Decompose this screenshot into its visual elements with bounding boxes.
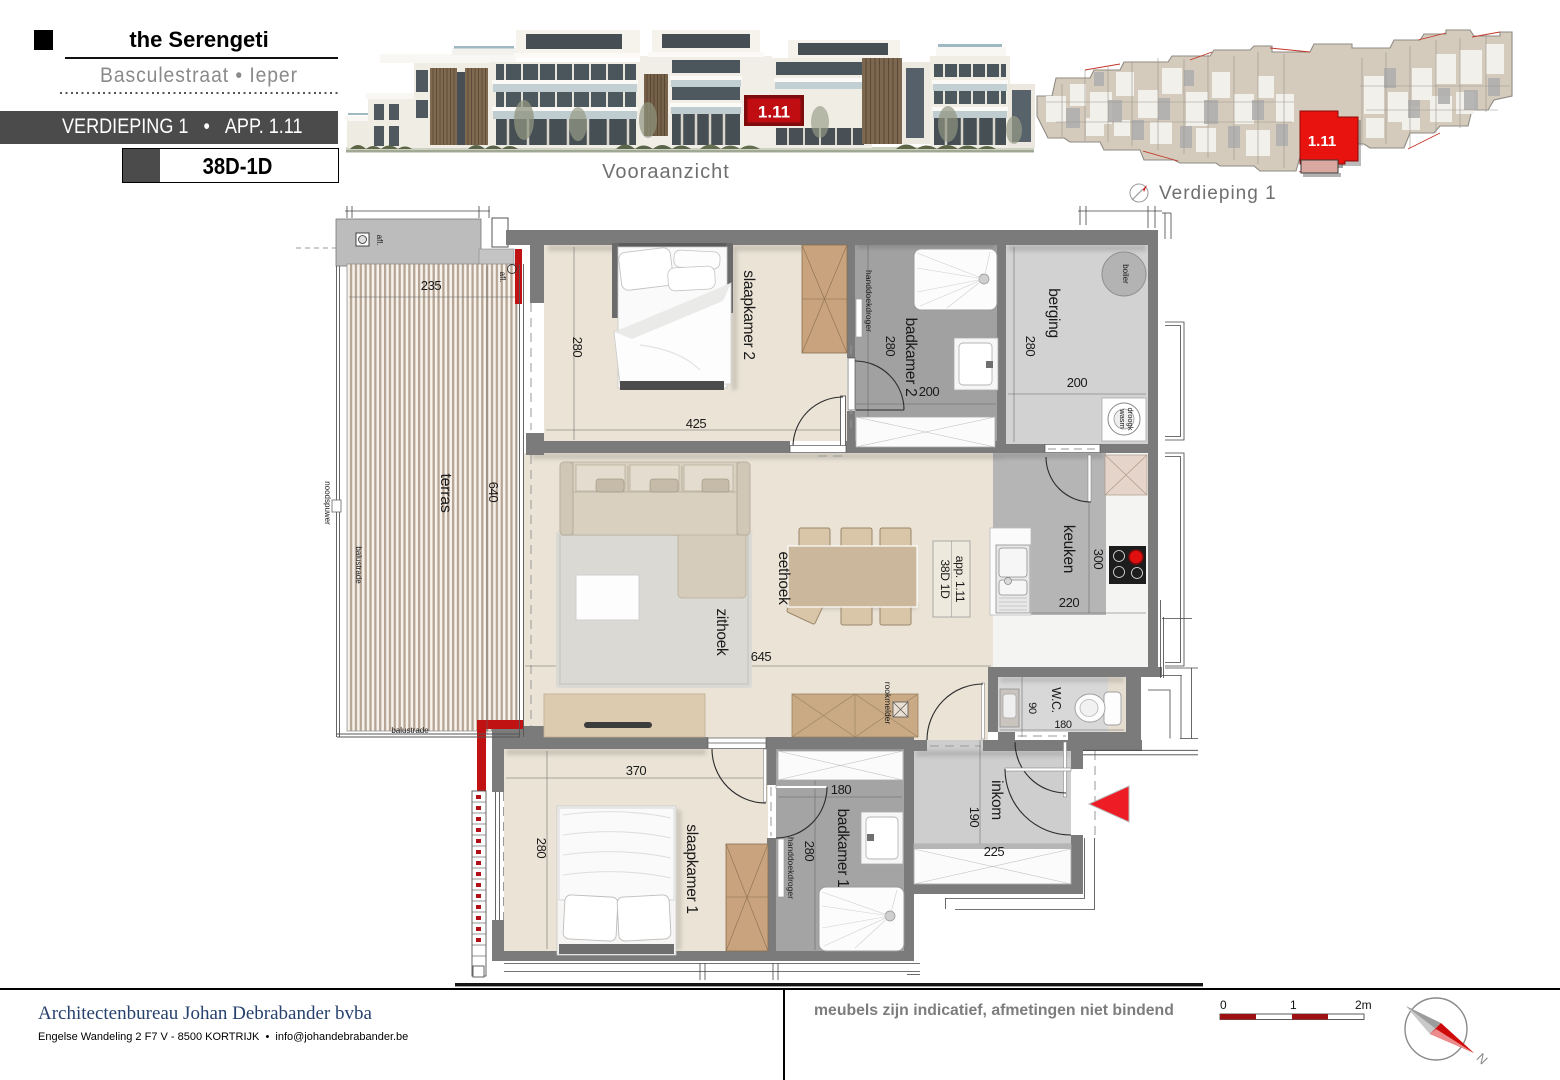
svg-text:180: 180: [831, 782, 852, 797]
svg-text:280: 280: [534, 838, 549, 859]
svg-text:280: 280: [883, 336, 898, 357]
svg-text:afl.: afl.: [375, 235, 384, 246]
svg-text:200: 200: [1067, 375, 1088, 390]
svg-text:38D 1D: 38D 1D: [938, 560, 952, 600]
svg-text:slaapkamer 1: slaapkamer 1: [683, 824, 700, 913]
svg-text:app. 1.11: app. 1.11: [953, 556, 967, 603]
svg-text:handdoekdroger: handdoekdroger: [786, 837, 796, 899]
svg-text:keuken: keuken: [1060, 525, 1077, 573]
svg-text:425: 425: [686, 416, 707, 431]
svg-text:2m: 2m: [1355, 998, 1372, 1012]
svg-text:0: 0: [1220, 998, 1227, 1012]
svg-text:badkamer 1: badkamer 1: [834, 809, 851, 888]
svg-text:inkom: inkom: [988, 780, 1005, 820]
svg-text:balustrade: balustrade: [391, 726, 429, 735]
svg-text:slaapkamer 2: slaapkamer 2: [740, 270, 757, 359]
svg-text:645: 645: [751, 649, 772, 664]
svg-text:370: 370: [626, 763, 647, 778]
svg-text:1.11: 1.11: [758, 103, 790, 122]
svg-text:90: 90: [1026, 702, 1038, 714]
svg-text:220: 220: [1059, 595, 1080, 610]
svg-text:balustrade: balustrade: [354, 546, 363, 584]
svg-text:280: 280: [802, 841, 817, 862]
svg-text:droogk: droogk: [1126, 408, 1135, 431]
svg-text:640: 640: [486, 482, 501, 503]
svg-text:zithoek: zithoek: [713, 608, 730, 656]
svg-text:1.11: 1.11: [1308, 133, 1336, 150]
svg-text:225: 225: [984, 844, 1005, 859]
svg-text:1: 1: [1290, 998, 1297, 1012]
svg-text:300: 300: [1091, 549, 1106, 570]
svg-text:rookmelder: rookmelder: [883, 682, 893, 725]
svg-text:boiler: boiler: [1121, 264, 1130, 284]
svg-text:noodspuwer: noodspuwer: [323, 481, 332, 525]
svg-text:afl.: afl.: [498, 272, 507, 283]
svg-text:200: 200: [919, 384, 940, 399]
svg-text:190: 190: [967, 807, 982, 828]
svg-text:N: N: [1474, 1050, 1491, 1067]
svg-text:180: 180: [1054, 719, 1071, 731]
svg-text:280: 280: [1023, 336, 1038, 357]
svg-text:235: 235: [421, 278, 442, 293]
svg-text:berging: berging: [1045, 288, 1062, 338]
svg-text:eethoek: eethoek: [775, 551, 792, 605]
svg-text:W.C.: W.C.: [1049, 687, 1063, 712]
svg-text:badkamer 2: badkamer 2: [902, 318, 919, 397]
svg-text:wasm: wasm: [1118, 408, 1127, 429]
svg-text:handdoekdroger: handdoekdroger: [864, 270, 874, 332]
svg-text:terras: terras: [437, 473, 454, 512]
svg-text:280: 280: [570, 337, 585, 358]
